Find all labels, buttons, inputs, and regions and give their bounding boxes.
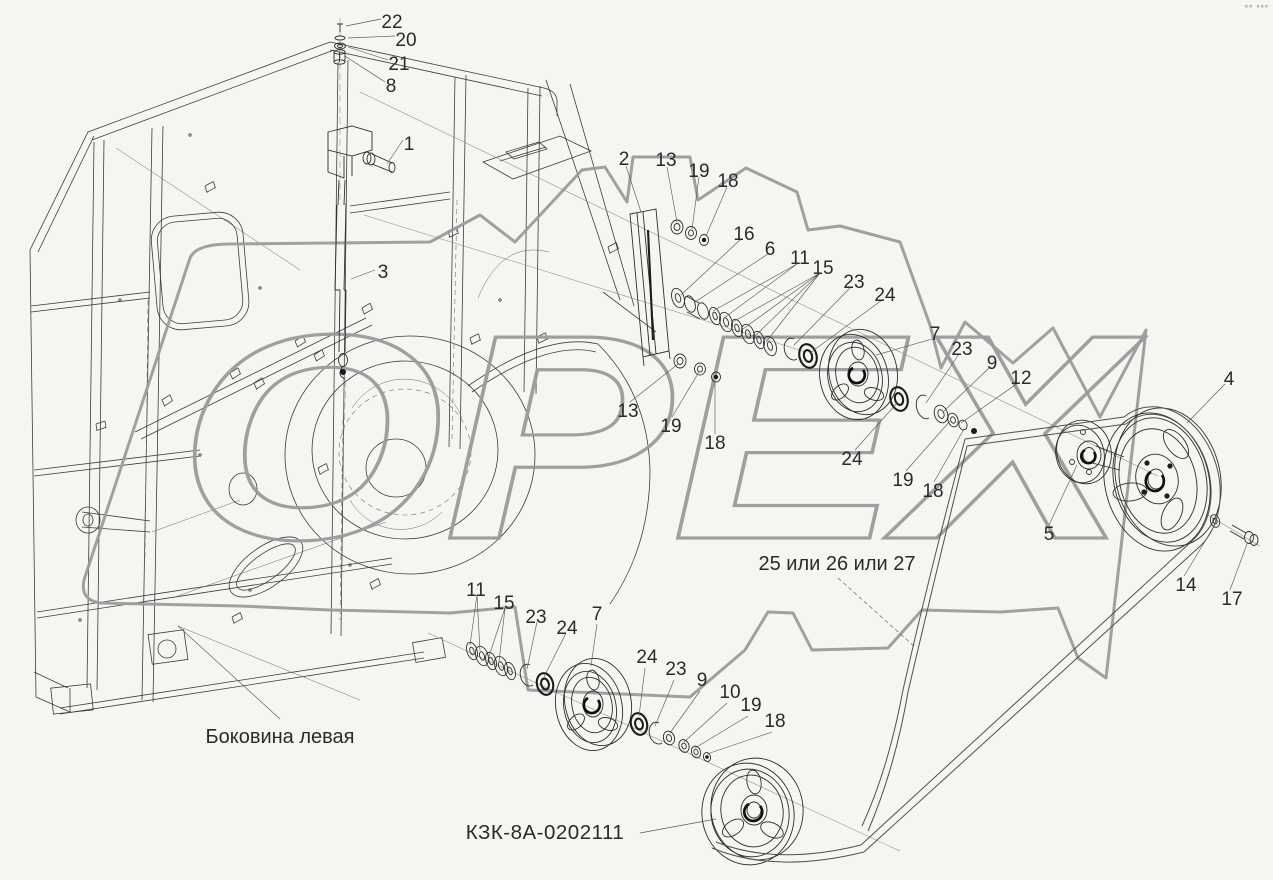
callout-11-top: 11: [790, 248, 810, 269]
callout-23-top: 23: [843, 272, 864, 293]
callout-23-right: 23: [951, 339, 972, 360]
parts-diagram-page: ОРЕХ: [0, 0, 1273, 880]
callout-17: 17: [1221, 589, 1242, 610]
callout-13-mid: 13: [617, 401, 638, 422]
exploded-view-diagram: ОРЕХ: [0, 0, 1273, 880]
bracket-pin-1: [328, 126, 395, 205]
belt-options-note: 25 или 26 или 27: [759, 553, 916, 575]
pulley-bottom: [694, 751, 811, 872]
corner-marks: °° °°°: [1245, 4, 1269, 13]
fasteners-top: [334, 24, 346, 64]
sidewall-caption: Боковина левая: [205, 726, 354, 748]
callout-21: 21: [388, 54, 409, 75]
callout-24-bottom: 24: [556, 618, 578, 639]
callout-18-bottom: 18: [764, 711, 785, 732]
callout-24-bottom2: 24: [636, 647, 658, 668]
callout-23-bottom2: 23: [665, 659, 686, 680]
callout-20: 20: [395, 30, 416, 51]
callout-19-mid: 19: [660, 416, 681, 437]
fastener-set-top: [671, 220, 709, 246]
callout-7-top: 7: [930, 324, 941, 345]
watermark-text: ОРЕХ: [178, 274, 1146, 600]
callout-18-low: 18: [922, 481, 943, 502]
washer-row-lower-right: [628, 711, 711, 762]
callout-4: 4: [1224, 369, 1235, 390]
callout-12: 12: [1010, 368, 1031, 389]
callout-7-bottom: 7: [592, 604, 603, 625]
callout-19-bottom: 19: [740, 695, 761, 716]
callout-19-low: 19: [892, 470, 913, 491]
callout-15-bottom: 15: [493, 593, 514, 614]
callout-10: 10: [719, 682, 740, 703]
callout-2: 2: [619, 149, 630, 170]
callout-3: 3: [378, 262, 389, 283]
callout-15-top: 15: [812, 258, 833, 279]
callout-14: 14: [1175, 575, 1197, 596]
callout-18-mid: 18: [704, 433, 725, 454]
callout-8: 8: [386, 76, 397, 97]
callout-13-top: 13: [655, 150, 676, 171]
assembly-number: КЗК-8А-0202111: [466, 821, 625, 844]
callout-5: 5: [1044, 524, 1055, 545]
callout-24-mid: 24: [841, 449, 863, 470]
pulley-7-bottom: [548, 652, 640, 757]
washer-row-lower-left: [464, 641, 555, 697]
callout-16: 16: [733, 224, 754, 245]
callout-23-bottom: 23: [525, 607, 546, 628]
callout-9-right: 9: [987, 353, 998, 374]
callout-18-top: 18: [717, 171, 738, 192]
callout-9-bottom: 9: [697, 670, 708, 691]
callout-1: 1: [404, 134, 415, 155]
callout-6: 6: [765, 239, 776, 260]
callout-11-bottom: 11: [466, 580, 486, 601]
callout-24-top: 24: [874, 285, 896, 306]
callout-19-top: 19: [688, 161, 709, 182]
